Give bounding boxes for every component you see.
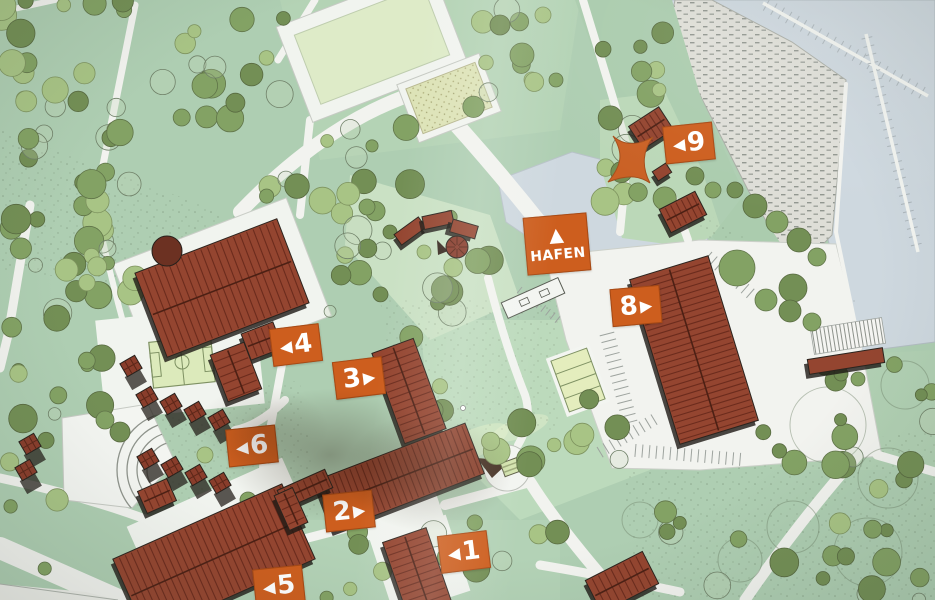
marker-number: 2 xyxy=(332,498,353,526)
map-marker-5: ◀5 xyxy=(252,564,306,600)
marker-arrow-icon: ▶ xyxy=(639,298,653,315)
marker-number: 1 xyxy=(461,537,482,565)
marker-number: 8 xyxy=(619,293,639,320)
harbor-sign: ▲ HAFEN xyxy=(523,212,592,275)
map-marker-6: ◀6 xyxy=(225,424,279,467)
map-marker-9: ◀9 xyxy=(662,121,716,164)
campus-map-photo: ◀12▶3▶◀4◀5◀68▶◀9 ▲ HAFEN xyxy=(0,0,935,600)
marker-number: 9 xyxy=(686,128,707,156)
map-marker-2: 2▶ xyxy=(322,489,376,532)
marker-arrow-icon: ◀ xyxy=(279,339,293,356)
marker-number: 4 xyxy=(293,330,314,358)
marker-arrow-icon: ◀ xyxy=(447,546,461,563)
map-terrain xyxy=(0,0,935,600)
marker-arrow-icon: ◀ xyxy=(262,579,276,596)
map-marker-3: 3▶ xyxy=(332,356,386,400)
marker-arrow-icon: ▶ xyxy=(352,502,366,519)
marker-number: 5 xyxy=(276,571,297,599)
map-marker-1: ◀1 xyxy=(437,530,491,574)
marker-number: 6 xyxy=(249,431,270,459)
harbor-sign-arrow-icon: ▲ xyxy=(548,225,564,245)
harbor-sign-label: HAFEN xyxy=(530,246,586,265)
marker-arrow-icon: ▶ xyxy=(362,369,376,386)
map-marker-8: 8▶ xyxy=(609,285,662,327)
red-tree-icon xyxy=(152,236,182,266)
map-marker-4: ◀4 xyxy=(269,323,323,367)
marker-number: 3 xyxy=(341,365,362,393)
marker-arrow-icon: ◀ xyxy=(672,136,686,153)
marker-arrow-icon: ◀ xyxy=(235,439,249,456)
